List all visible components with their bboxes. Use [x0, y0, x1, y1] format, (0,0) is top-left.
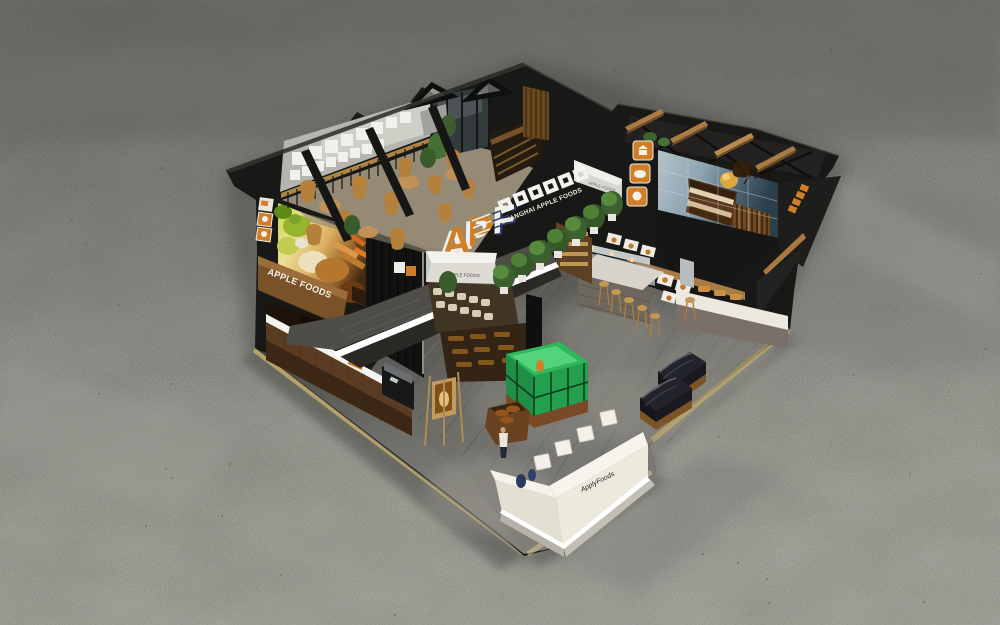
- svg-text:P: P: [467, 206, 493, 255]
